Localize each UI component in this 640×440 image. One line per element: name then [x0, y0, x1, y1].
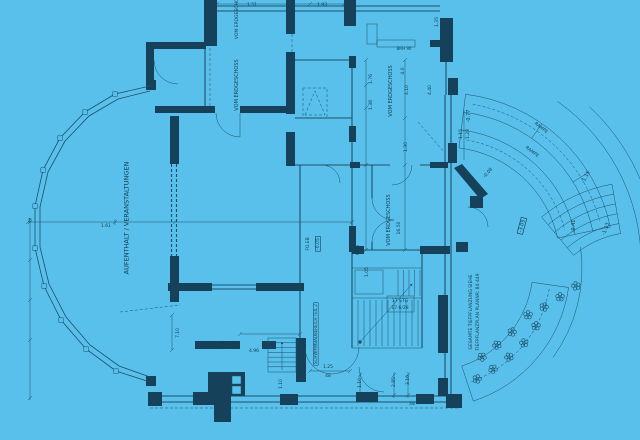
dim-brh90: BRH 90 — [397, 47, 412, 51]
dim-40: 4.0 — [401, 67, 406, 74]
dim-115: 1.15 — [459, 129, 464, 139]
floor-plan-canvas: AUFENTHALT / VERANSTALTUNGENVOM ERDGESCH… — [0, 0, 640, 440]
planting-note-line1: GESAMTE TIEFPFLANZUNG SIEHE — [469, 274, 474, 349]
axis-label-e: E — [28, 218, 31, 224]
dim-161: 1.61 — [101, 224, 111, 229]
ramp-label-1: RAMPE — [533, 121, 548, 134]
room-label-vom-erdgeschoss-4: VOM ERDGESCHOSS — [386, 194, 391, 245]
level-label-minus-077: -0.77 — [466, 110, 471, 123]
level-label-minus-115: -1.15 — [581, 170, 592, 184]
level-label-minus-008: -0.08 — [482, 167, 493, 179]
dim-1650: 16.50 — [397, 222, 402, 235]
stair-label-line1: 17 STG — [392, 299, 408, 304]
annotation-layer: AUFENTHALT / VERANSTALTUNGENVOM ERDGESCH… — [0, 0, 640, 440]
dim-440: 4.40 — [428, 85, 433, 95]
dim-285: 2.85 — [392, 377, 397, 387]
level-label-minus-041: -0.41 — [571, 220, 576, 233]
dim-0526: 0.5/26 — [222, 342, 235, 346]
level-label-minus-113: -1.13 — [601, 222, 610, 236]
dim-138: 1.38 — [369, 100, 374, 110]
dim-496: 4.96 — [249, 349, 259, 354]
dim-125: 1.25 — [323, 365, 333, 370]
level-label-minus-305: -3.05 — [517, 217, 528, 235]
room-label-vom-erdgeschoss-3: VOM ERDGESCHOSS — [388, 65, 393, 116]
stair-label-line2: 17.6/28 — [391, 306, 408, 311]
level-label-foeb: FO.EB — [306, 237, 311, 250]
dim-105: 1.05 — [365, 267, 370, 277]
dim-151: 1.51 — [247, 3, 257, 8]
room-label-vom-erdgeschoss-2: VOM ERDGESCHOSS — [234, 59, 239, 110]
dim-130: 1.30 — [404, 142, 409, 152]
dim-135: 1.35 — [435, 17, 440, 27]
dim-710: 7.10 — [176, 328, 181, 338]
level-label-minus-005: -0.05 — [315, 236, 321, 251]
dim-310: 3.10 — [406, 375, 411, 385]
dim-110a: 1.10 — [279, 379, 284, 389]
area-label-schwimmbadbereich: SCHWIMMBADBEREICH TEIL 2 — [313, 303, 318, 366]
room-label-vom-erdgeschoss-1: VOM ERDGESCHOSS — [235, 0, 240, 39]
dim-193: 1.93 — [317, 3, 327, 8]
dim-410: 4.10 — [405, 85, 410, 95]
dim-110b: 1.10 — [358, 378, 363, 388]
dim-48a: 48 — [325, 374, 331, 379]
dim-128: 1.28 — [466, 129, 471, 139]
planting-note-line2: TIEFPFLANZPLAN PLANNR: 84-449 — [476, 273, 481, 350]
room-label-aufenthalt-veranstaltungen: AUFENTHALT / VERANSTALTUNGEN — [124, 162, 131, 275]
dim-176: 1.76 — [369, 74, 374, 84]
dim-48b: 48 — [409, 402, 415, 407]
dim-636: 6.36 — [356, 245, 361, 255]
ramp-label-2: RAMPE — [524, 145, 539, 158]
